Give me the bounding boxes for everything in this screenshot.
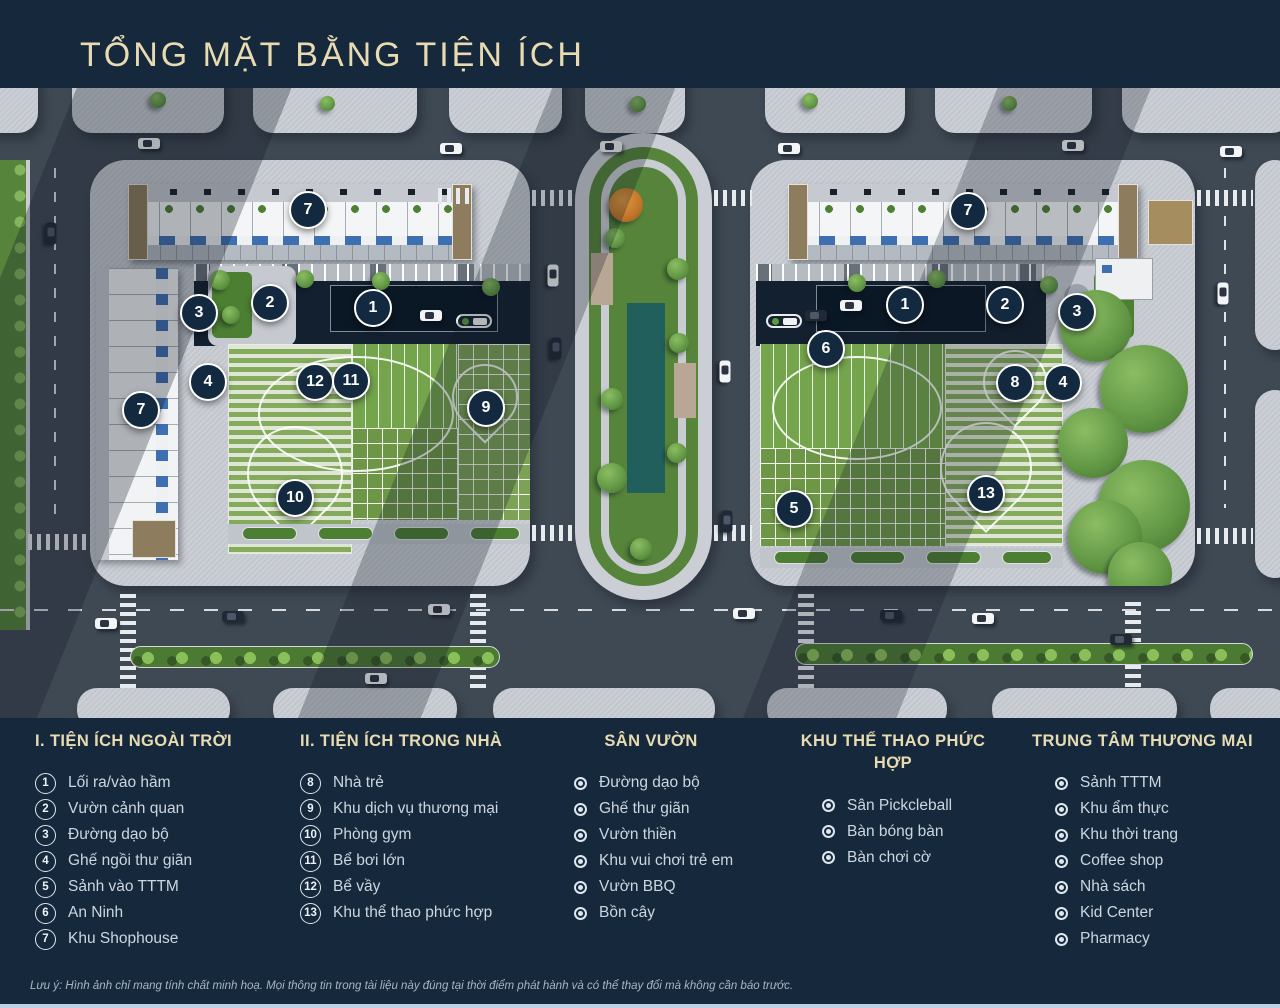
legend-section-garden: SÂN VƯỜN Đường dạo bộGhế thư giãnVườn th…: [556, 728, 746, 926]
legend-list: Sảnh TTTMKhu ẩm thựcKhu thời trangCoffee…: [1015, 770, 1270, 952]
legend-item-label: Khu vui chơi trẻ em: [599, 852, 733, 870]
legend-item-label: Vườn thiền: [599, 826, 676, 844]
legend-section-header: II. TIỆN ÍCH TRONG NHÀ: [300, 730, 560, 752]
legend-item-label: Phòng gym: [333, 826, 411, 844]
bullet-icon: [1055, 803, 1068, 816]
map-marker-11: 11: [332, 362, 370, 400]
map-marker-12: 12: [296, 363, 334, 401]
map-marker-1: 1: [354, 289, 392, 327]
legend-number-badge: 1: [35, 773, 56, 794]
bullet-icon: [1055, 855, 1068, 868]
map-marker-3: 3: [1058, 293, 1096, 331]
bullet-icon: [574, 881, 587, 894]
legend-item-label: Bể bơi lớn: [333, 852, 405, 870]
legend-item-label: Nhà sách: [1080, 878, 1145, 896]
marker-layer: 73214712119107123684513: [0, 88, 1280, 718]
legend-item: 5Sảnh vào TTTM: [35, 874, 280, 900]
legend-list: Sân PickcleballBàn bóng bànBàn chơi cờ: [798, 793, 988, 871]
bullet-icon: [1055, 933, 1068, 946]
legend-item: 10Phòng gym: [300, 822, 560, 848]
bullet-icon: [574, 829, 587, 842]
page-title: TỔNG MẶT BẰNG TIỆN ÍCH: [80, 36, 585, 75]
legend-item-label: Khu Shophouse: [68, 930, 178, 948]
legend-section-header: SÂN VƯỜN: [556, 730, 746, 752]
legend-item: Bàn bóng bàn: [822, 819, 988, 845]
site-plan-map: 73214712119107123684513: [0, 88, 1280, 718]
map-marker-5: 5: [775, 490, 813, 528]
map-marker-1: 1: [886, 286, 924, 324]
legend-item: Pharmacy: [1055, 926, 1270, 952]
legend-item-label: Bàn chơi cờ: [847, 849, 931, 867]
legend-section-mall: TRUNG TÂM THƯƠNG MẠI Sảnh TTTMKhu ẩm thự…: [1015, 728, 1270, 952]
legend-item-label: Vườn BBQ: [599, 878, 676, 896]
legend-item: Vườn BBQ: [574, 874, 746, 900]
legend-item: Bàn chơi cờ: [822, 845, 988, 871]
legend-item: 3Đường dạo bộ: [35, 822, 280, 848]
legend-number-badge: 12: [300, 877, 321, 898]
legend-number-badge: 13: [300, 903, 321, 924]
legend-item-label: Ghế ngồi thư giãn: [68, 852, 192, 870]
legend-item: Sân Pickcleball: [822, 793, 988, 819]
map-marker-13: 13: [967, 475, 1005, 513]
legend-item-label: Bàn bóng bàn: [847, 823, 944, 841]
bullet-icon: [1055, 907, 1068, 920]
bullet-icon: [822, 851, 835, 864]
legend-item: Ghế thư giãn: [574, 796, 746, 822]
legend-item: Bồn cây: [574, 900, 746, 926]
bullet-icon: [574, 777, 587, 790]
bullet-icon: [574, 803, 587, 816]
bullet-icon: [1055, 881, 1068, 894]
legend-section-header: I. TIỆN ÍCH NGOÀI TRỜI: [35, 730, 280, 752]
map-marker-9: 9: [467, 389, 505, 427]
legend-item-label: Đường dạo bộ: [599, 774, 700, 792]
bullet-icon: [574, 855, 587, 868]
legend-item-label: Bể vầy: [333, 878, 380, 896]
bullet-icon: [822, 825, 835, 838]
legend-number-badge: 6: [35, 903, 56, 924]
legend-number-badge: 10: [300, 825, 321, 846]
legend-item: 12Bể vầy: [300, 874, 560, 900]
legend-item: 1Lối ra/vào hầm: [35, 770, 280, 796]
legend-list: 1Lối ra/vào hầm2Vườn cảnh quan3Đường dạo…: [35, 770, 280, 952]
legend-section-outdoor: I. TIỆN ÍCH NGOÀI TRỜI 1Lối ra/vào hầm2V…: [35, 728, 280, 952]
bullet-icon: [574, 907, 587, 920]
map-marker-2: 2: [251, 284, 289, 322]
legend-number-badge: 8: [300, 773, 321, 794]
legend-item: Kid Center: [1055, 900, 1270, 926]
bullet-icon: [822, 799, 835, 812]
legend-item: 11Bể bơi lớn: [300, 848, 560, 874]
bullet-icon: [1055, 829, 1068, 842]
legend-item: Sảnh TTTM: [1055, 770, 1270, 796]
legend-item-label: Nhà trẻ: [333, 774, 384, 792]
legend-item: 6An Ninh: [35, 900, 280, 926]
legend-number-badge: 11: [300, 851, 321, 872]
legend-item: 4Ghế ngồi thư giãn: [35, 848, 280, 874]
legend-item: Khu vui chơi trẻ em: [574, 848, 746, 874]
legend-number-badge: 9: [300, 799, 321, 820]
legend-item: 13Khu thể thao phức hợp: [300, 900, 560, 926]
legend-item-label: Lối ra/vào hầm: [68, 774, 171, 792]
legend-item: Nhà sách: [1055, 874, 1270, 900]
disclaimer-note: Lưu ý: Hình ảnh chỉ mang tính chất minh …: [30, 980, 793, 992]
legend-item: Khu ẩm thực: [1055, 796, 1270, 822]
legend-item-label: Vườn cảnh quan: [68, 800, 184, 818]
legend-item: Coffee shop: [1055, 848, 1270, 874]
map-marker-7: 7: [949, 192, 987, 230]
legend-item-label: Khu thời trang: [1080, 826, 1178, 844]
map-marker-7: 7: [122, 391, 160, 429]
legend-item: 9Khu dịch vụ thương mại: [300, 796, 560, 822]
map-marker-8: 8: [996, 364, 1034, 402]
page-bottom-accent: [0, 1004, 1280, 1008]
legend-item-label: Pharmacy: [1080, 930, 1150, 948]
legend-item: Đường dạo bộ: [574, 770, 746, 796]
legend-number-badge: 4: [35, 851, 56, 872]
legend-number-badge: 3: [35, 825, 56, 846]
legend-list: Đường dạo bộGhế thư giãnVườn thiềnKhu vu…: [556, 770, 746, 926]
legend-number-badge: 2: [35, 799, 56, 820]
legend-item-label: Sảnh TTTM: [1080, 774, 1162, 792]
legend-item: 7Khu Shophouse: [35, 926, 280, 952]
legend-section-sports: KHU THỂ THAO PHỨC HỢP Sân PickcleballBàn…: [798, 728, 988, 871]
legend-item-label: Đường dạo bộ: [68, 826, 169, 844]
map-marker-3: 3: [180, 294, 218, 332]
legend-section-indoor: II. TIỆN ÍCH TRONG NHÀ 8Nhà trẻ9Khu dịch…: [300, 728, 560, 926]
legend-item-label: Sảnh vào TTTM: [68, 878, 179, 896]
legend-item: 8Nhà trẻ: [300, 770, 560, 796]
map-marker-4: 4: [189, 363, 227, 401]
legend-item: Vườn thiền: [574, 822, 746, 848]
legend-number-badge: 5: [35, 877, 56, 898]
map-marker-10: 10: [276, 479, 314, 517]
legend-item-label: Khu dịch vụ thương mại: [333, 800, 498, 818]
legend-item-label: Khu thể thao phức hợp: [333, 904, 492, 922]
map-marker-6: 6: [807, 330, 845, 368]
legend-item: 2Vườn cảnh quan: [35, 796, 280, 822]
legend-item-label: Bồn cây: [599, 904, 655, 922]
map-marker-2: 2: [986, 286, 1024, 324]
legend-number-badge: 7: [35, 929, 56, 950]
legend-item-label: Khu ẩm thực: [1080, 800, 1169, 818]
legend-item-label: Kid Center: [1080, 904, 1153, 922]
legend-item-label: Coffee shop: [1080, 852, 1163, 870]
map-marker-7: 7: [289, 191, 327, 229]
legend-item-label: Sân Pickcleball: [847, 797, 952, 815]
legend-item-label: An Ninh: [68, 904, 123, 922]
legend-list: 8Nhà trẻ9Khu dịch vụ thương mại10Phòng g…: [300, 770, 560, 926]
bullet-icon: [1055, 777, 1068, 790]
legend-item: Khu thời trang: [1055, 822, 1270, 848]
legend-section-header: TRUNG TÂM THƯƠNG MẠI: [1015, 730, 1270, 752]
map-marker-4: 4: [1044, 364, 1082, 402]
legend-section-header: KHU THỂ THAO PHỨC HỢP: [798, 730, 988, 775]
legend-item-label: Ghế thư giãn: [599, 800, 690, 818]
legend-panel: I. TIỆN ÍCH NGOÀI TRỜI 1Lối ra/vào hầm2V…: [0, 718, 1280, 990]
